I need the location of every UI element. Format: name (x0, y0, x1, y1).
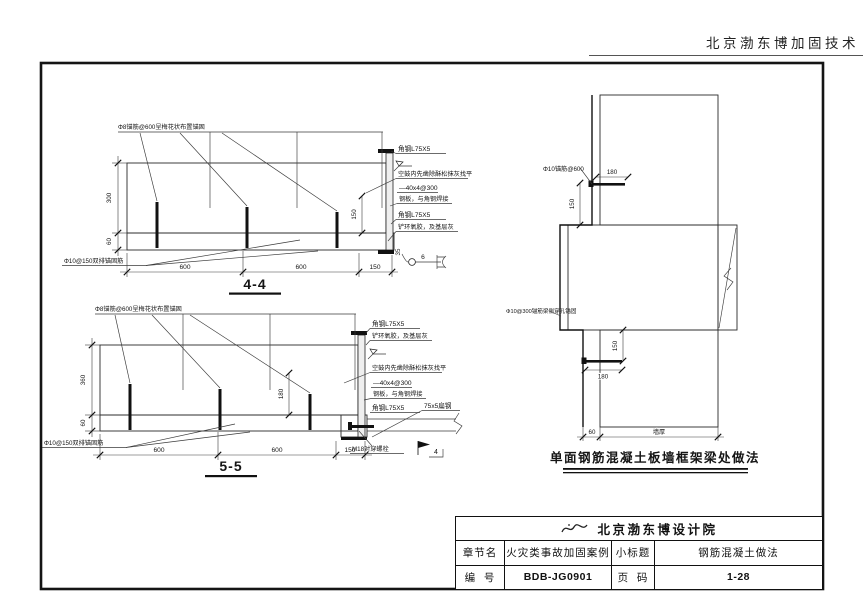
new-rc-layer (560, 95, 592, 427)
anchor-node (589, 181, 594, 188)
section-4-4: Φ8锚筋@600呈梅花状布置锚固 300 60 150 600 600 150 (62, 123, 472, 295)
wall-hatch-55 (100, 345, 358, 415)
cell-chapter-value: 火灾类事故加固案例 (504, 540, 611, 565)
label-angle-steel: 角钢L75X5 (398, 210, 431, 219)
label-angle-steel: 角钢L75X5 (372, 403, 405, 412)
detail-caption: 单面钢筋混凝土板墙框架梁处做法 (550, 450, 760, 465)
label-epoxy: 铲环氧胶，及基层灰 (372, 332, 428, 340)
dim-slab-thk-55: 60 (80, 419, 87, 426)
wall-beam-detail: 180 150 150 180 60 墙厚 Φ10锚筋@600 Φ1 (506, 95, 760, 473)
note-anchor-pattern-44: Φ8锚筋@600呈梅花状布置锚固 (118, 123, 205, 131)
anchor-bar-top (592, 183, 625, 186)
anchor-bar (246, 207, 249, 248)
anchor-bar (156, 202, 159, 248)
cell-number-value: BDB-JG0901 (504, 565, 611, 590)
cell-subtitle-value: 钢筋混凝土做法 (654, 540, 822, 565)
section-title-44: 4-4 (243, 276, 266, 292)
anchor-bar (219, 389, 222, 430)
label-epoxy: 铲环氧胶，及基层灰 (398, 223, 454, 231)
note-dowel-55: Φ10@150双排锚固筋 (44, 439, 103, 447)
weld-detail-44: 35 6 (395, 248, 446, 269)
anchor-bar (336, 212, 339, 248)
drawing-sheet: 北京渤东博加固技术 (0, 0, 863, 609)
label-angle-steel: 角钢L75X5 (398, 144, 431, 153)
break-mark (724, 268, 733, 290)
cell-number-label: 编 号 (456, 565, 504, 590)
dim-embed-top: 180 (607, 169, 618, 176)
angle-steel-top-55 (351, 331, 367, 335)
anchor-bar-mid (585, 360, 622, 363)
cell-chapter-label: 章节名 (456, 540, 504, 565)
label-plate-weld: 钢板，与角钢焊接 (399, 195, 449, 203)
caption-underline (563, 468, 748, 470)
cell-page-label: 页 码 (611, 565, 654, 590)
weld-size: 6 (421, 254, 425, 261)
dim-bottom-44: 600 (179, 264, 190, 271)
section-5-5: Φ8锚筋@600呈梅花状布置锚固 360 60 180 600 600 150 (42, 305, 462, 477)
dim-wall-height-55: 360 (80, 374, 87, 385)
note-anchor-pattern-55: Φ8锚筋@600呈梅花状布置锚固 (95, 305, 182, 313)
anchor-bar (309, 394, 312, 430)
design-institute-logo (560, 521, 590, 536)
through-bolt (352, 425, 374, 428)
label-through-bolt: M18对穿螺栓 (352, 445, 389, 453)
dim-inner-44: 150 (351, 209, 358, 220)
new-face-strip-44 (386, 153, 393, 250)
label-plate-weld: 钢板，与角钢焊接 (373, 390, 423, 398)
cell-subtitle-label: 小标题 (611, 540, 654, 565)
wall-upper-hatch (600, 95, 718, 225)
weld-flag: 4 (418, 441, 443, 457)
label-angle-steel: 角钢L75X5 (372, 319, 405, 328)
flat-steel-bar (341, 437, 367, 440)
label-anchor-top: Φ10锚筋@600 (543, 165, 584, 173)
dim-slab-thk-44: 60 (106, 238, 113, 245)
slab-band-55 (100, 415, 358, 431)
beam-hatch (568, 225, 718, 330)
bolt-nut (348, 422, 352, 430)
section-title-55: 5-5 (219, 458, 242, 474)
dim-wall-thk: 墙厚 (653, 428, 665, 436)
anchor-bar (129, 384, 132, 430)
dim-bottom-55: 600 (153, 447, 164, 454)
label-plate-spec: —40x4@300 (399, 185, 438, 192)
angle-steel-bottom-44 (378, 250, 394, 254)
dim-inner-55: 180 (278, 388, 285, 399)
dim-mid150: 150 (612, 340, 619, 351)
caption-underline (563, 472, 748, 473)
label-anchor-mid: Φ10@300锚筋梁侧穿孔锚固 (506, 307, 577, 315)
dim-wall-height-44: 300 (106, 192, 113, 203)
label-flat-steel: 75x5扁钢 (424, 401, 452, 410)
dim-bottom-44: 600 (295, 264, 306, 271)
label-hollow-repair: 空鼓内先凿除酥松抹灰找平 (372, 364, 446, 372)
weld-symbol (394, 161, 412, 171)
slab-band-44 (127, 233, 394, 250)
label-plate-spec: —40x4@300 (373, 380, 412, 387)
new-face-strip-55 (358, 335, 365, 437)
wall-hatch-44 (127, 163, 386, 233)
dim-top150: 150 (569, 198, 576, 209)
dim-layer-thk: 60 (589, 429, 596, 436)
cell-page-value: 1-28 (654, 565, 822, 590)
anchor-node (582, 358, 587, 365)
weld-length: 35 (395, 248, 402, 255)
title-block-company: 北京渤东博设计院 (597, 519, 717, 538)
label-hollow-repair: 空鼓内先凿除酥松抹灰找平 (398, 170, 472, 178)
sheet-frame (41, 63, 823, 589)
weld-number: 4 (434, 449, 438, 456)
title-underline (229, 293, 281, 295)
title-block: 北京渤东博设计院 章节名 火灾类事故加固案例 小标题 钢筋混凝土做法 编 号 B… (455, 516, 823, 590)
dim-bottom-55: 600 (271, 447, 282, 454)
dim-embed-mid: 180 (598, 374, 609, 381)
note-dowel-44: Φ10@150双排锚固筋 (64, 257, 123, 265)
title-underline (205, 475, 257, 477)
dim-bottom-44: 150 (369, 264, 380, 271)
weld-symbol (368, 349, 386, 359)
